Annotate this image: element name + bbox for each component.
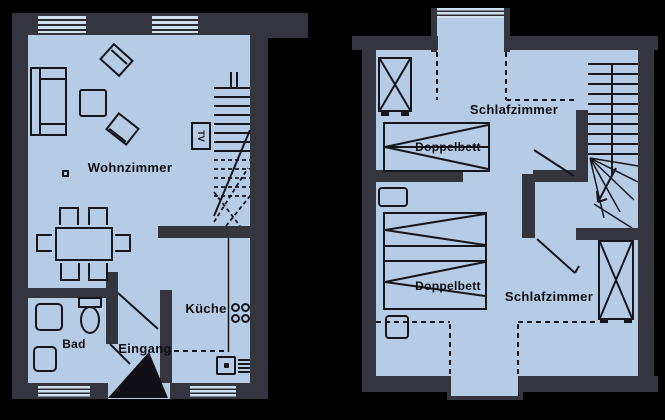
- wall-right: [638, 36, 654, 392]
- wardrobe-foot: [401, 112, 409, 116]
- bed1-label: Doppelbett: [404, 140, 492, 154]
- dormer-top-floor: [437, 18, 504, 52]
- dormer-top-post-right: [504, 8, 510, 52]
- entrance-label: Eingang: [116, 341, 174, 356]
- wall-bottom-left: [362, 376, 450, 392]
- upper-floor-plan: Schlafzimmer Doppelbett Schlafzimmer Dop…: [0, 0, 665, 420]
- nightstand-1: [378, 187, 408, 207]
- tv-label: TV: [196, 130, 206, 142]
- bath-label: Bad: [56, 337, 92, 351]
- wall-bottom-right: [518, 376, 658, 392]
- wall-stairwell: [576, 110, 588, 182]
- wardrobe-foot: [624, 319, 632, 323]
- wardrobe-bottom: [598, 240, 634, 320]
- wardrobe-foot: [600, 319, 608, 323]
- wall-left: [362, 36, 376, 392]
- nightstand-2: [385, 315, 409, 339]
- dormer-bottom-sill: [447, 396, 523, 400]
- wall-top-right: [504, 36, 658, 50]
- wall-hall-vertical: [522, 174, 535, 238]
- kitchen-label: Küche: [182, 301, 230, 316]
- floor-plan-canvas: TV Wohnzimmer Küche Bad Eingang: [0, 0, 665, 420]
- dormer-top-window: [437, 8, 504, 18]
- wall-stairs-bottom: [576, 228, 638, 240]
- dormer-bottom-post-right: [519, 376, 523, 398]
- bed2-label: Doppelbett: [406, 279, 490, 293]
- wardrobe-top: [378, 57, 412, 112]
- dormer-bottom-post-left: [447, 376, 451, 398]
- bedroom2-label: Schlafzimmer: [496, 289, 602, 304]
- living-room-label: Wohnzimmer: [84, 160, 176, 175]
- wall-top-left: [352, 36, 438, 50]
- bedroom1-label: Schlafzimmer: [462, 102, 566, 117]
- wardrobe-foot: [381, 112, 389, 116]
- double-bed-bottom: [383, 212, 487, 310]
- dormer-bottom-floor: [451, 376, 518, 398]
